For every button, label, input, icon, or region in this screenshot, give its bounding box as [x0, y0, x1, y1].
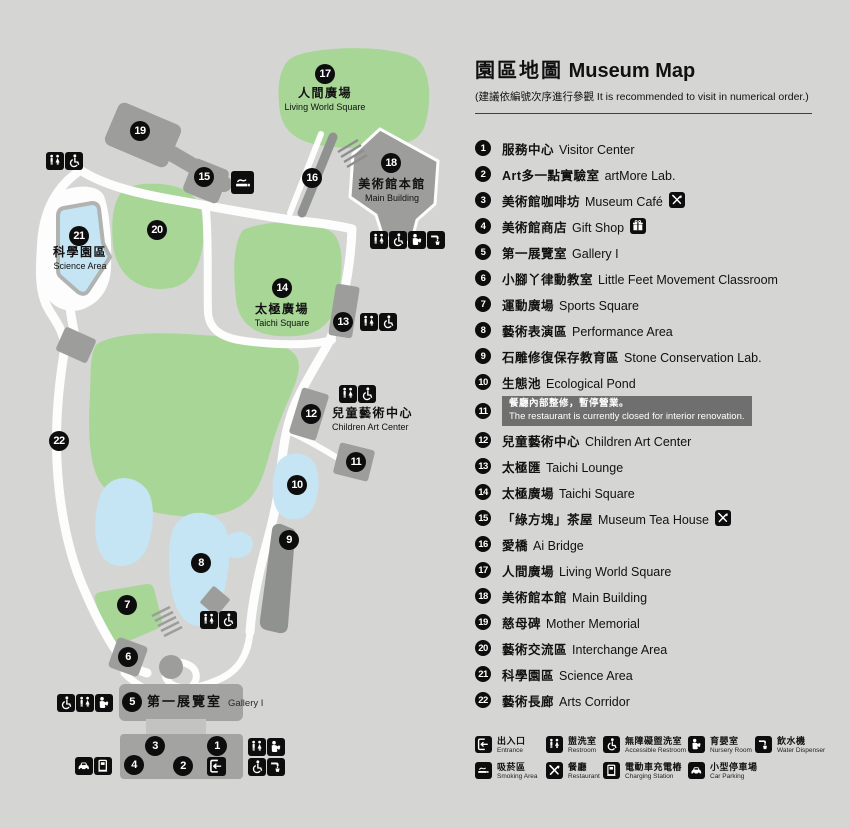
nursery-icon	[267, 738, 285, 756]
facility-name-zh: 飲水機	[777, 736, 825, 747]
facility-name-zh: 無障礙盥洗室	[625, 736, 686, 747]
facility-smoking: 吸菸區Smoking Area	[475, 762, 537, 782]
accessible-icon	[389, 231, 407, 249]
poi-name-en: Gallery I	[572, 247, 619, 261]
poi-number-badge: 5	[475, 244, 491, 260]
poi-name-en: Children Art Center	[585, 435, 691, 449]
nursery-icon	[95, 694, 113, 712]
poi-item-19: 19慈母碑Mother Memorial	[475, 609, 843, 635]
map-label: 人間廣場Living World Square	[285, 86, 366, 113]
poi-number-badge: 14	[475, 484, 491, 500]
poi-name-zh: 服務中心	[502, 143, 554, 157]
map-label-en: Main Building	[358, 193, 426, 205]
poi-name-zh: 「綠方塊」茶屋	[502, 513, 593, 527]
facility-name-zh: 小型停車場	[710, 762, 758, 773]
poi-item-20: 20藝術交流區Interchange Area	[475, 635, 843, 661]
map-marker-20: 20	[147, 220, 167, 240]
divider-line	[475, 113, 812, 114]
entrance-icon	[207, 757, 226, 776]
poi-number-badge: 12	[475, 432, 491, 448]
poi-item-18: 18美術館本館Main Building	[475, 583, 843, 609]
poi-item-15: 15「綠方塊」茶屋Museum Tea House	[475, 505, 843, 531]
facility-name-en: Entrance	[497, 747, 526, 755]
map-label-en: Gallery I	[228, 698, 263, 710]
poi-name-zh: 藝術長廊	[502, 695, 554, 709]
poi-name-zh: 太極廣場	[502, 487, 554, 501]
restaurant-icon	[669, 192, 685, 208]
accessible-icon	[248, 758, 266, 776]
facility-name-en: Water Dispenser	[777, 747, 825, 755]
facility-name-en: Car Parking	[710, 773, 758, 781]
poi-name-en: Museum Tea House	[598, 513, 709, 527]
facility-label: 飲水機Water Dispenser	[777, 736, 825, 756]
poi-name-en: Little Feet Movement Classroom	[598, 273, 778, 287]
facility-name-en: Smoking Area	[497, 773, 537, 781]
accessible-icon	[603, 736, 620, 753]
poi-item-8: 8藝術表演區Performance Area	[475, 317, 843, 343]
map-label-en: Science Area	[53, 261, 107, 273]
poi-name-zh: 生態池	[502, 377, 541, 391]
map-marker-5: 5	[122, 692, 142, 712]
facility-label: 餐廳Restaurant	[568, 762, 600, 782]
nursery-icon	[408, 231, 426, 249]
poi-name-en: Gift Shop	[572, 221, 624, 235]
facility-parking: 小型停車場Car Parking	[688, 762, 758, 782]
poi-name-zh: 藝術表演區	[502, 325, 567, 339]
map-marker-4: 4	[124, 755, 144, 775]
restroom-icon	[76, 694, 94, 712]
map-facility-icons	[339, 385, 376, 403]
poi-name: 慈母碑Mother Memorial	[502, 613, 640, 632]
facility-name-zh: 出入口	[497, 736, 526, 747]
map-facility-icons	[46, 152, 83, 170]
poi-name-en: Ecological Pond	[546, 377, 636, 391]
facility-name-zh: 電動車充電樁	[625, 762, 682, 773]
facility-entrance: 出入口Entrance	[475, 736, 526, 756]
map-label-en: Children Art Center	[332, 422, 413, 434]
smoking-icon	[475, 762, 492, 779]
map-marker-15: 15	[194, 167, 214, 187]
accessible-icon	[379, 313, 397, 331]
poi-name: 第一展覽室Gallery I	[502, 243, 619, 262]
poi-number-badge: 2	[475, 166, 491, 182]
map-label-zh: 美術館本館	[358, 177, 426, 193]
poi-number-badge: 4	[475, 218, 491, 234]
poi-name-en: Ai Bridge	[533, 539, 584, 553]
poi-number-badge: 22	[475, 692, 491, 708]
map-marker-6: 6	[118, 647, 138, 667]
poi-number-badge: 16	[475, 536, 491, 552]
poi-name-en: Performance Area	[572, 325, 673, 339]
charging-icon	[94, 757, 112, 775]
poi-name-zh: 第一展覽室	[502, 247, 567, 261]
map-label-zh: 人間廣場	[285, 86, 366, 102]
poi-name-en: Museum Café	[585, 195, 663, 209]
map-marker-3: 3	[145, 736, 165, 756]
map-facility-icons	[75, 757, 112, 775]
poi-name: 美術館本館Main Building	[502, 587, 647, 606]
poi-name: 生態池Ecological Pond	[502, 373, 636, 392]
poi-item-5: 5第一展覽室Gallery I	[475, 239, 843, 265]
poi-name-en: Visitor Center	[559, 143, 635, 157]
poi-name-en: Sports Square	[559, 299, 639, 313]
accessible-icon	[65, 152, 83, 170]
facility-name-en: Accessible Restroom	[625, 747, 686, 755]
poi-name: 小腳丫律動教室Little Feet Movement Classroom	[502, 269, 778, 288]
poi-name-en: Main Building	[572, 591, 647, 605]
facility-restroom: 盥洗室Restroom	[546, 736, 597, 756]
poi-item-11: 11餐廳內部整修，暫停營業。The restaurant is currentl…	[475, 395, 843, 427]
poi-number-badge: 19	[475, 614, 491, 630]
map-label: 美術館本館Main Building	[358, 177, 426, 204]
facility-label: 盥洗室Restroom	[568, 736, 597, 756]
notice-text-en: The restaurant is currently closed for i…	[509, 411, 745, 424]
poi-name-en: Interchange Area	[572, 643, 667, 657]
map-label: 太極廣場Taichi Square	[255, 302, 310, 329]
facility-nursery: 育嬰室Nursery Room	[688, 736, 752, 756]
parking-icon	[688, 762, 705, 779]
poi-item-2: 2Art多一點實驗室artMore Lab.	[475, 161, 843, 187]
poi-number-badge: 11	[475, 403, 491, 419]
poi-name: 人間廣場Living World Square	[502, 561, 671, 580]
poi-number-badge: 13	[475, 458, 491, 474]
poi-name-zh: 愛橋	[502, 539, 528, 553]
map-facility-icons	[370, 231, 445, 249]
poi-name: 石雕修復保存教育區Stone Conservation Lab.	[502, 347, 762, 366]
restaurant-closed-notice: 餐廳內部整修，暫停營業。The restaurant is currently …	[502, 396, 752, 426]
map-marker-22: 22	[49, 431, 69, 451]
poi-name: 藝術交流區Interchange Area	[502, 639, 667, 658]
restroom-icon	[546, 736, 563, 753]
poi-name-zh: 運動廣場	[502, 299, 554, 313]
page-title-en: Museum Map	[569, 60, 696, 82]
poi-list: 1服務中心Visitor Center2Art多一點實驗室artMore Lab…	[475, 135, 843, 713]
map-marker-8: 8	[191, 553, 211, 573]
poi-number-badge: 7	[475, 296, 491, 312]
poi-number-badge: 15	[475, 510, 491, 526]
map-marker-18: 18	[381, 153, 401, 173]
map-facility-icons	[360, 313, 397, 331]
poi-name: 美術館商店Gift Shop	[502, 217, 624, 236]
accessible-icon	[219, 611, 237, 629]
map-label: 第一展覽室Gallery I	[147, 694, 263, 711]
map-facility-icons	[231, 171, 254, 194]
map-label-zh: 第一展覽室	[147, 694, 222, 711]
map-marker-13: 13	[333, 312, 353, 332]
poi-name-zh: 人間廣場	[502, 565, 554, 579]
facility-accessible: 無障礙盥洗室Accessible Restroom	[603, 736, 686, 756]
poi-name-zh: 科學園區	[502, 669, 554, 683]
poi-number-badge: 17	[475, 562, 491, 578]
map-marker-21: 21	[69, 226, 89, 246]
poi-item-14: 14太極廣場Taichi Square	[475, 479, 843, 505]
poi-name-zh: 小腳丫律動教室	[502, 273, 593, 287]
facility-name-en: Charging Station	[625, 773, 682, 781]
poi-name-zh: 美術館咖啡坊	[502, 195, 580, 209]
gift-icon	[630, 218, 646, 234]
poi-name: 「綠方塊」茶屋Museum Tea House	[502, 509, 709, 528]
map-label-zh: 科學園區	[53, 245, 107, 261]
facility-label: 電動車充電樁Charging Station	[625, 762, 682, 782]
map-facility-icons	[57, 694, 113, 712]
facility-name-en: Restroom	[568, 747, 597, 755]
poi-name-en: Taichi Square	[559, 487, 635, 501]
facility-legend: 出入口Entrance盥洗室Restroom無障礙盥洗室Accessible R…	[475, 736, 847, 806]
map-marker-12: 12	[301, 404, 321, 424]
poi-item-6: 6小腳丫律動教室Little Feet Movement Classroom	[475, 265, 843, 291]
poi-item-17: 17人間廣場Living World Square	[475, 557, 843, 583]
parking-icon	[75, 757, 93, 775]
map-label-zh: 兒童藝術中心	[332, 406, 413, 422]
map-marker-17: 17	[315, 64, 335, 84]
page-title-zh: 園區地圖	[475, 60, 563, 82]
poi-name: 兒童藝術中心Children Art Center	[502, 431, 691, 450]
map-marker-1: 1	[207, 736, 227, 756]
map-marker-10: 10	[287, 475, 307, 495]
entrance-icon	[475, 736, 492, 753]
page-subtitle: (建議依編號次序進行參觀 It is recommended to visit …	[475, 89, 809, 104]
water-icon	[755, 736, 772, 753]
facility-water: 飲水機Water Dispenser	[755, 736, 825, 756]
poi-name: 科學園區Science Area	[502, 665, 633, 684]
poi-name-zh: 太極匯	[502, 461, 541, 475]
poi-name-zh: 兒童藝術中心	[502, 435, 580, 449]
museum-map-poster: 12345678910111213141516171819202122人間廣場L…	[0, 0, 850, 828]
poi-item-7: 7運動廣場Sports Square	[475, 291, 843, 317]
poi-number-badge: 9	[475, 348, 491, 364]
poi-name: 太極匯Taichi Lounge	[502, 457, 623, 476]
poi-name-zh: 藝術交流區	[502, 643, 567, 657]
restroom-icon	[248, 738, 266, 756]
map-facility-icons	[207, 757, 226, 776]
poi-number-badge: 10	[475, 374, 491, 390]
facility-label: 小型停車場Car Parking	[710, 762, 758, 782]
poi-number-badge: 21	[475, 666, 491, 682]
facility-name-zh: 育嬰室	[710, 736, 752, 747]
map-marker-19: 19	[130, 121, 150, 141]
facility-label: 出入口Entrance	[497, 736, 526, 756]
facility-label: 吸菸區Smoking Area	[497, 762, 537, 782]
map-marker-2: 2	[173, 756, 193, 776]
poi-item-9: 9石雕修復保存教育區Stone Conservation Lab.	[475, 343, 843, 369]
poi-name-zh: 慈母碑	[502, 617, 541, 631]
poi-name-zh: 美術館本館	[502, 591, 567, 605]
map-label-zh: 太極廣場	[255, 302, 310, 318]
map-facility-icons	[200, 611, 237, 629]
poi-item-22: 22藝術長廊Arts Corridor	[475, 687, 843, 713]
map-label: 科學園區Science Area	[53, 245, 107, 272]
nursery-icon	[688, 736, 705, 753]
poi-item-13: 13太極匯Taichi Lounge	[475, 453, 843, 479]
restroom-icon	[370, 231, 388, 249]
map-marker-16: 16	[302, 168, 322, 188]
map-label: 兒童藝術中心Children Art Center	[332, 406, 413, 433]
map-marker-14: 14	[272, 278, 292, 298]
poi-name-en: Taichi Lounge	[546, 461, 623, 475]
map-label-en: Living World Square	[285, 102, 366, 114]
water-icon	[427, 231, 445, 249]
poi-name: 美術館咖啡坊Museum Café	[502, 191, 663, 210]
poi-number-badge: 8	[475, 322, 491, 338]
poi-name: 愛橋Ai Bridge	[502, 535, 584, 554]
poi-name: 太極廣場Taichi Square	[502, 483, 635, 502]
map-marker-7: 7	[117, 595, 137, 615]
facility-name-zh: 盥洗室	[568, 736, 597, 747]
poi-name: Art多一點實驗室artMore Lab.	[502, 165, 675, 184]
facility-charging: 電動車充電樁Charging Station	[603, 762, 682, 782]
poi-name-en: Living World Square	[559, 565, 671, 579]
map-label-en: Taichi Square	[255, 318, 310, 330]
poi-name-en: Arts Corridor	[559, 695, 630, 709]
poi-item-1: 1服務中心Visitor Center	[475, 135, 843, 161]
restroom-icon	[200, 611, 218, 629]
poi-name: 服務中心Visitor Center	[502, 139, 635, 158]
facility-name-zh: 吸菸區	[497, 762, 537, 773]
accessible-icon	[358, 385, 376, 403]
restaurant-icon	[715, 510, 731, 526]
notice-text-zh: 餐廳內部整修，暫停營業。	[509, 398, 745, 411]
poi-name-en: Mother Memorial	[546, 617, 640, 631]
facility-name-en: Restaurant	[568, 773, 600, 781]
poi-number-badge: 1	[475, 140, 491, 156]
poi-name: 運動廣場Sports Square	[502, 295, 639, 314]
map-facility-icons	[248, 758, 285, 776]
poi-name-en: artMore Lab.	[605, 169, 676, 183]
facility-name-zh: 餐廳	[568, 762, 600, 773]
restroom-icon	[339, 385, 357, 403]
poi-item-21: 21科學園區Science Area	[475, 661, 843, 687]
restroom-icon	[46, 152, 64, 170]
poi-name-zh: 美術館商店	[502, 221, 567, 235]
water-icon	[267, 758, 285, 776]
smoking-icon	[231, 171, 254, 194]
poi-item-10: 10生態池Ecological Pond	[475, 369, 843, 395]
page-title: 園區地圖 Museum Map	[475, 54, 695, 83]
poi-name: 藝術表演區Performance Area	[502, 321, 673, 340]
poi-name-en: Science Area	[559, 669, 633, 683]
poi-item-12: 12兒童藝術中心Children Art Center	[475, 427, 843, 453]
facility-label: 育嬰室Nursery Room	[710, 736, 752, 756]
facility-restaurant: 餐廳Restaurant	[546, 762, 600, 782]
restaurant-icon	[546, 762, 563, 779]
facility-name-en: Nursery Room	[710, 747, 752, 755]
poi-name-zh: Art多一點實驗室	[502, 169, 600, 183]
poi-item-16: 16愛橋Ai Bridge	[475, 531, 843, 557]
facility-label: 無障礙盥洗室Accessible Restroom	[625, 736, 686, 756]
poi-number-badge: 20	[475, 640, 491, 656]
poi-number-badge: 6	[475, 270, 491, 286]
poi-item-4: 4美術館商店Gift Shop	[475, 213, 843, 239]
poi-number-badge: 18	[475, 588, 491, 604]
poi-name-zh: 石雕修復保存教育區	[502, 351, 619, 365]
poi-number-badge: 3	[475, 192, 491, 208]
map-marker-9: 9	[279, 530, 299, 550]
poi-name-en: Stone Conservation Lab.	[624, 351, 762, 365]
poi-name: 藝術長廊Arts Corridor	[502, 691, 630, 710]
map-facility-icons	[248, 738, 285, 756]
poi-item-3: 3美術館咖啡坊Museum Café	[475, 187, 843, 213]
restroom-icon	[360, 313, 378, 331]
accessible-icon	[57, 694, 75, 712]
map-marker-11: 11	[346, 452, 366, 472]
charging-icon	[603, 762, 620, 779]
